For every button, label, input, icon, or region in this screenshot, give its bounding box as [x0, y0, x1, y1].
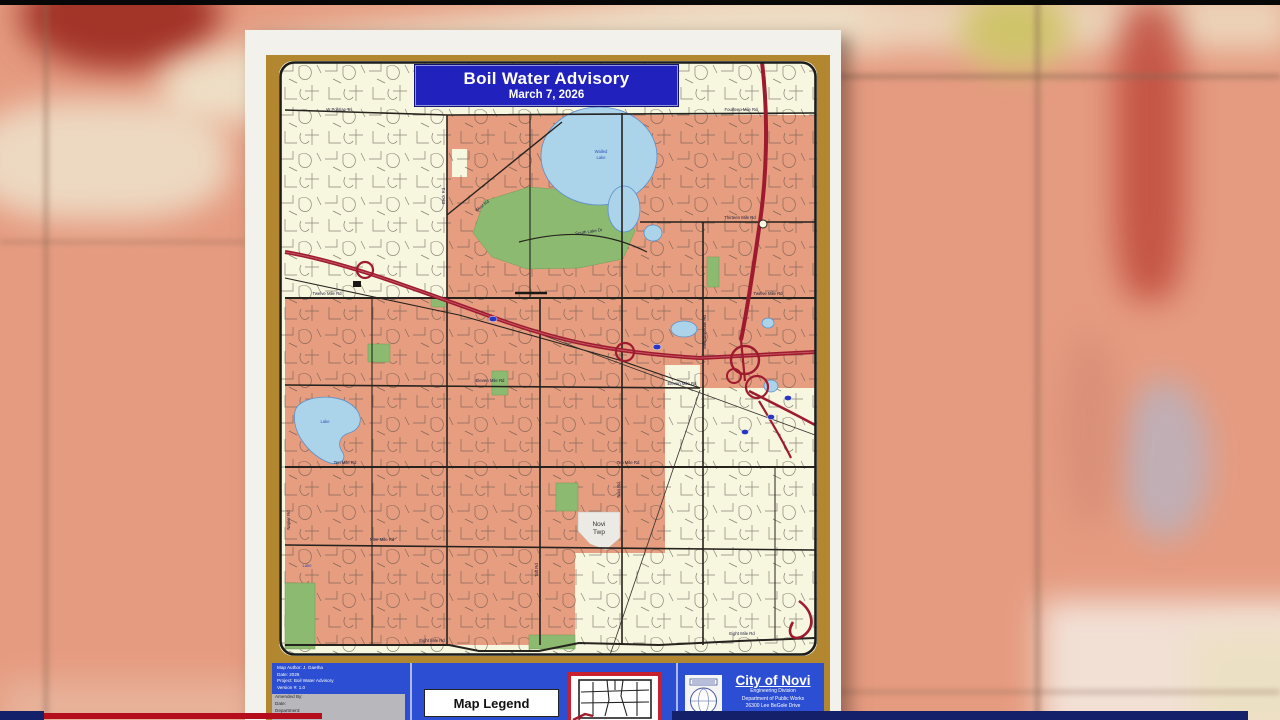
bg-gridline-v-left — [44, 0, 48, 720]
lake-label: Walled — [595, 149, 608, 154]
road-label: Nine Mile Rd — [370, 537, 395, 542]
locator-inset-graphic — [571, 676, 658, 720]
version-line: Version #: 1.0 — [274, 685, 407, 692]
bg-blob-blue-right — [1120, 380, 1210, 540]
project-line: Project: Boil Water Advisory — [274, 678, 407, 685]
road-label: Eight Mile Rd — [419, 638, 445, 643]
road-label: Twelve Mile Rd — [753, 291, 783, 296]
road-label: Napier Rd — [286, 510, 291, 530]
advisory-title: Boil Water Advisory — [416, 70, 677, 89]
lower-third-red-strip — [44, 713, 322, 719]
road-label: Twelve Mile Rd — [312, 291, 342, 296]
agency-block: City of Novi Engineering Division Depart… — [724, 673, 822, 711]
date-line: Date: 2026 — [274, 672, 407, 679]
bg-blob-yellow — [960, 0, 1070, 70]
road-label: Novi Rd — [616, 482, 621, 498]
letterbox-strip — [0, 0, 1280, 5]
road-label: Thirteen Mile Rd — [724, 215, 756, 220]
road-label: Meadowbrook Rd — [702, 315, 707, 349]
township-label-line2: Twp — [593, 529, 605, 536]
advisory-date: March 7, 2026 — [416, 89, 677, 102]
author-line: Map Author: J. Gaetha — [274, 665, 407, 672]
map-legend-box: Map Legend — [424, 689, 559, 717]
township-label-line1: Novi — [592, 521, 605, 528]
road-label: Eight Mile Rd — [729, 631, 755, 636]
lower-third-navy-right — [672, 711, 1248, 720]
road-label: Taft Rd — [534, 563, 539, 577]
agency-address: 26300 Lee BeGole Drive — [724, 703, 822, 711]
bg-gridline-h-left — [0, 240, 245, 244]
bg-blob-red-band-right — [1115, 0, 1185, 300]
advisory-title-box: Boil Water Advisory March 7, 2026 — [415, 65, 678, 106]
locator-inset-map — [567, 672, 662, 720]
bg-gridline-h-right — [840, 74, 1280, 79]
road-label: Eleven Mile Rd — [668, 381, 698, 386]
agency-department: Department of Public Works — [724, 696, 822, 704]
bg-blob-blue-left — [1060, 330, 1120, 530]
lower-third-navy-left — [0, 711, 44, 720]
newscast-frame: W Pontiac TrlFourteen Mile RdThirteen Mi… — [0, 0, 1280, 720]
road-label: Fourteen Mile Rd — [725, 107, 759, 112]
road-label: W Pontiac Trl — [326, 107, 352, 112]
road-label: Eleven Mile Rd — [476, 378, 506, 383]
route-marker — [759, 220, 767, 228]
advisory-map-document: W Pontiac TrlFourteen Mile RdThirteen Mi… — [245, 30, 841, 720]
road-label: Ten Mile Rd — [334, 460, 357, 465]
novi-advisory-map: W Pontiac TrlFourteen Mile RdThirteen Mi… — [279, 61, 817, 656]
agency-name: City of Novi — [724, 673, 822, 688]
agency-division: Engineering Division — [724, 688, 822, 696]
bg-blob-cream-bottomright — [1190, 630, 1280, 720]
lake-label: Lake — [596, 155, 606, 160]
amended-by-line: Amended By: — [272, 694, 405, 701]
bg-blob-cream-topright — [860, 0, 1280, 50]
lake-label: Lake — [302, 563, 312, 568]
bg-gridline-h-right2 — [840, 690, 1280, 694]
road-label: Ten Mile Rd — [617, 460, 640, 465]
amended-date-line: Date: — [272, 701, 405, 708]
lake-label: Lake — [320, 419, 330, 424]
panel-divider-1 — [410, 663, 412, 720]
map-legend-label: Map Legend — [454, 696, 530, 711]
bg-gridline-v-right — [1035, 0, 1040, 720]
road-label: Beck Rd — [441, 187, 446, 204]
